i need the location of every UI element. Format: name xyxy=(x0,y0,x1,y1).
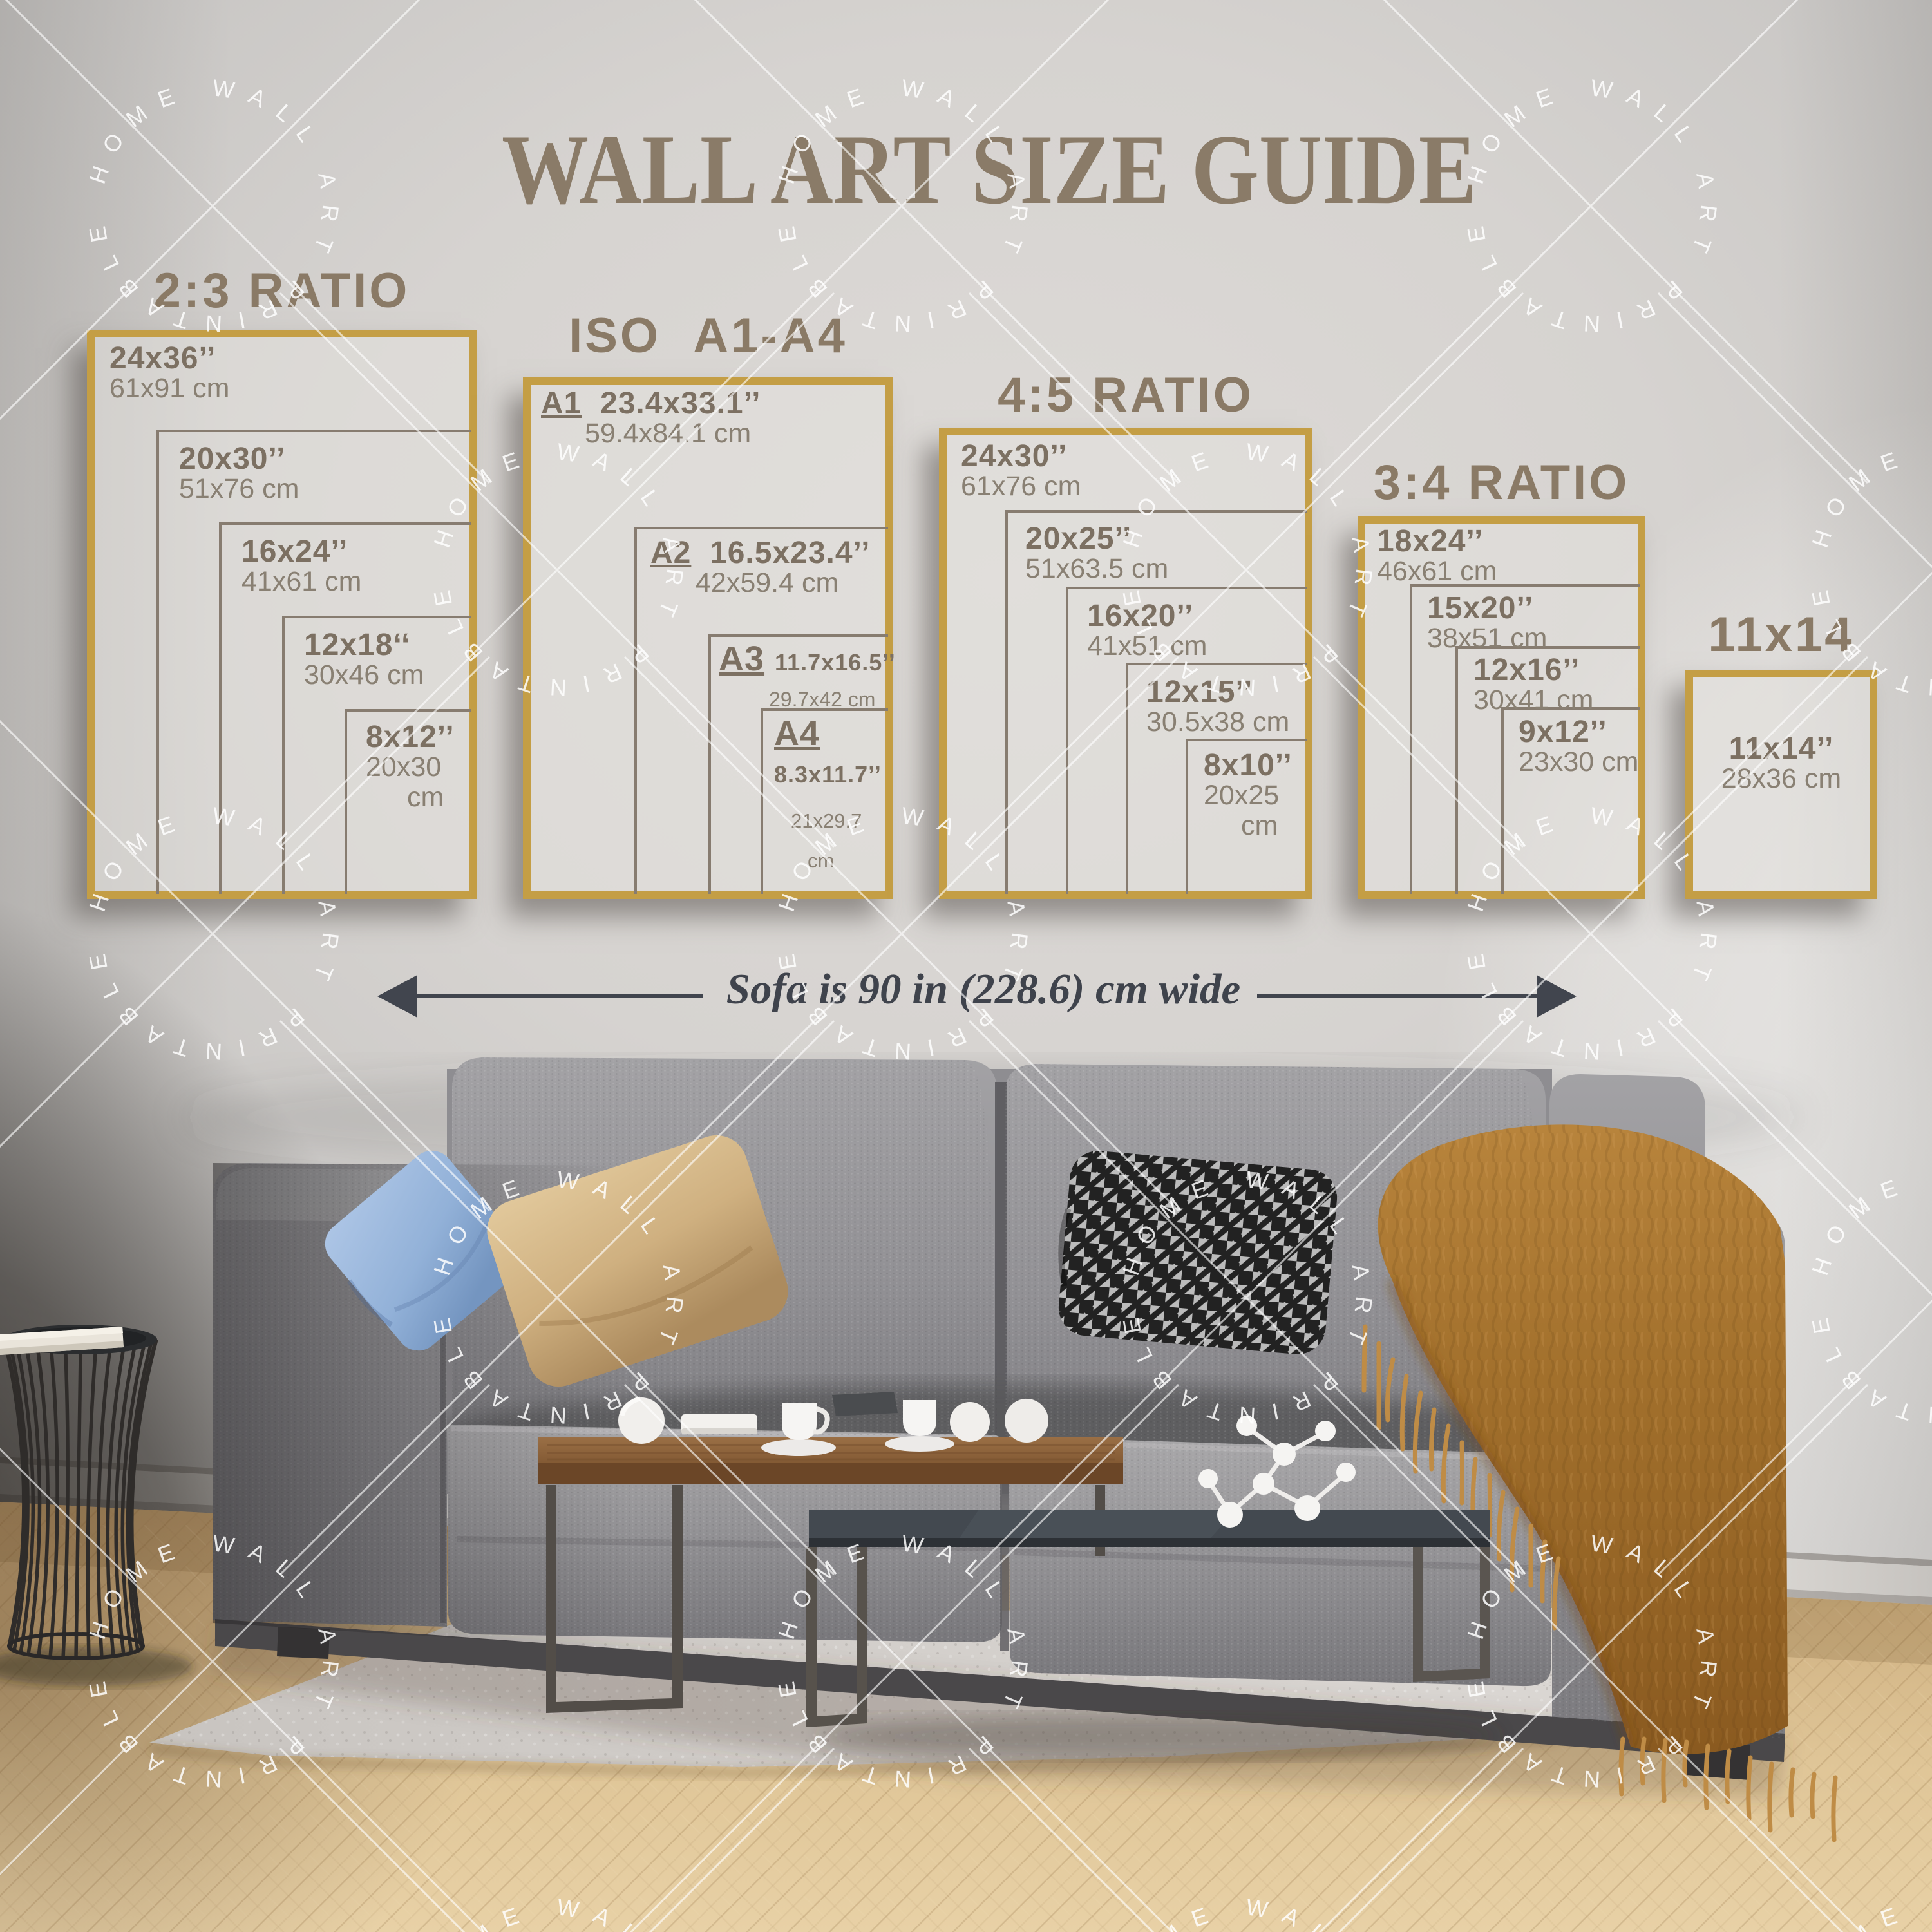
svg-text:HOME WALL ART PRINTABLE: HOME WALL ART PRINTABLE xyxy=(1804,1166,1932,1429)
svg-text:HOME WALL ART PRINTABLE: HOME WALL ART PRINTABLE xyxy=(1804,438,1932,701)
